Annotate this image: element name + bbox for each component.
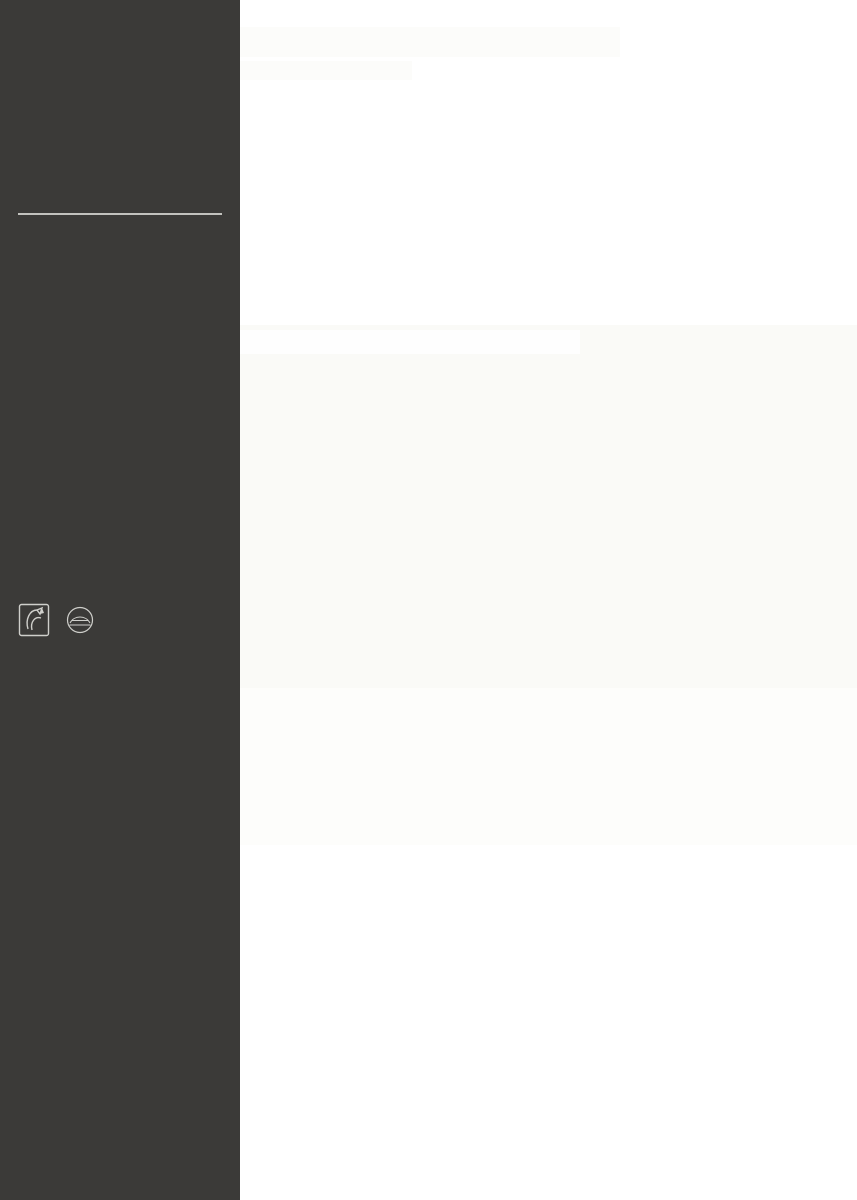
komunikacja-map — [18, 356, 222, 465]
swot-table — [18, 213, 222, 215]
sidebar — [0, 0, 240, 1200]
schwarzplan-map — [18, 231, 222, 340]
elevation-aa — [252, 721, 848, 779]
zielen-map — [18, 481, 222, 590]
aerial-view — [240, 845, 857, 1200]
wydzial-logo — [66, 606, 100, 634]
views-section — [240, 688, 857, 845]
unit-locator-map — [18, 43, 222, 193]
aerial-render — [240, 845, 857, 1200]
siteplan-header — [240, 330, 580, 354]
logos-row — [18, 603, 222, 637]
poster-subtitle — [240, 61, 412, 80]
poster-main-title — [240, 27, 620, 57]
politechnika-logo-icon — [18, 603, 50, 637]
hero-render — [240, 0, 857, 325]
elevation-bb — [252, 793, 848, 843]
siteplan-drawing — [240, 325, 857, 688]
main-column — [240, 0, 857, 1200]
wydzial-logo-icon — [66, 606, 94, 634]
politechnika-logo — [18, 603, 56, 637]
siteplan-section — [240, 325, 857, 688]
thesis-poster — [0, 0, 857, 1200]
